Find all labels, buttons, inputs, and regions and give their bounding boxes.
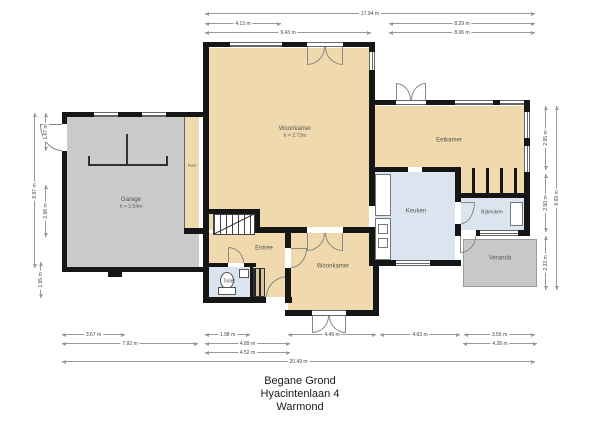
dim-label: 8.69 m [554,188,560,207]
plan-title-line1: Begane Grond [0,375,600,388]
closet-divider [500,168,503,193]
room-label-kast: Kast [188,162,196,169]
room-label-garage: Garage h = 2.54m [120,197,142,211]
veranda-deck [463,239,537,287]
garage-bench-tick [88,156,90,166]
wall-pillar [108,272,122,277]
dim-label: 17.94 m [359,11,381,17]
dim-top-left-inner: 4.13 m [205,23,281,24]
dim-label: 4.63 m [410,332,429,338]
dim-right-bottom: 2.33 m [545,236,546,290]
dim-label: 3.55 m [490,332,509,338]
kitchen-appliance [378,238,388,248]
window [455,100,493,105]
wall [524,172,530,236]
floor-garage [67,117,199,267]
dim-bottom-3: 4.52 m [205,352,290,353]
dim-label: 7.92 m [120,341,139,347]
wall [285,233,291,248]
room-label-eetkamer: Eetkamer [436,138,462,145]
kitchen-appliance [378,224,388,234]
room-name: Toilet [223,279,235,285]
room-name: Woonkamer [279,126,311,132]
wall [118,112,142,117]
wall [461,193,524,198]
dim-label: 4.13 m [233,21,252,27]
dim-top-right-inner: 8.29 m [389,23,535,24]
window [524,146,530,172]
garage-bench-stem [126,134,128,166]
dim-top-total: 17.94 m [205,13,535,14]
room-name: Woonkamer [317,264,349,270]
dim-bottom-1e: 3.55 m [464,334,535,335]
window [94,112,118,117]
wall [518,230,530,236]
room-height: h = 2.54m [120,204,142,211]
dim-left-outer: 8.97 m [34,113,35,268]
room-label-woonkamer: Woonkamer h = 2.73m [279,126,311,140]
wall [209,263,228,267]
wall [255,227,307,233]
wall [62,151,67,272]
wall [426,100,455,105]
door-opening [228,263,244,267]
door-arc-garden-right [329,316,346,333]
room-label-entree: Entree [255,246,273,253]
door-arc-garden-left [312,316,329,333]
toilet-tank [218,287,236,295]
dim-left-mid: 2.98 m [45,185,46,237]
garage-bench-line [88,164,168,166]
meter-cupboard [253,268,265,297]
dim-label: 9.43 m [278,30,297,36]
room-height: h = 2.73m [279,133,311,140]
window [396,260,430,266]
dim-label: 2.50 m [543,193,549,212]
wall [62,267,203,272]
dim-bottom-1a: 3.67 m [62,334,125,335]
toilet-sink [239,269,249,278]
window [500,100,524,105]
dim-bottom-1b: 1.98 m [205,334,250,335]
window [369,52,375,70]
dim-right-outer: 8.69 m [556,106,557,290]
room-label-bijkeuken: Bijkeuken [481,210,503,217]
wall [369,42,375,52]
wall [375,167,408,172]
dim-label: 8.97 m [32,181,38,200]
dim-label: 2.95 m [543,128,549,147]
kitchen-counter [375,174,391,216]
room-name: Veranda [489,256,511,262]
room-name: Kast [188,163,196,168]
wall [282,42,307,47]
dim-bottom-1d: 4.63 m [380,334,460,335]
closet-divider [472,168,475,193]
wall [455,224,461,236]
door-opening [396,100,426,105]
plan-title-line2: Hyacintenlaan 4 [0,388,600,401]
dim-top-right-outer: 8.06 m [389,32,535,33]
wall [430,260,461,266]
door-arc-terrace-right [411,83,426,100]
wall [493,100,500,105]
dim-bottom-2a: 7.92 m [62,343,198,344]
floor-mask [209,303,288,310]
wall [255,209,260,233]
room-name: Eetkamer [436,138,462,144]
wall-kast-divider [184,117,185,228]
room-name: Garage [121,197,141,203]
dim-left-top: 1.67 m [45,113,46,151]
dim-label: 1.98 m [218,332,237,338]
dim-label: 8.06 m [452,30,471,36]
room-label-toilet: Toilet [223,279,235,286]
closet-divider [486,168,489,193]
dim-label: 4.89 m [238,341,257,347]
door-opening [408,167,422,172]
wall [524,100,530,112]
window [142,112,166,117]
wall [346,310,379,316]
dim-bottom-1c: 4.49 m [288,334,376,335]
bijkeuken-appliance [510,202,523,226]
window [524,112,530,138]
wall [369,100,396,105]
dim-left-bottom: 1.95 m [40,262,41,298]
dim-bottom-total: 20.49 m [62,361,535,362]
dim-right-top: 2.95 m [545,106,546,170]
wall [285,310,312,316]
dim-label: 2.98 m [43,201,49,220]
floor-kast [185,115,199,229]
room-name: Entree [255,246,273,252]
closet-divider [514,168,517,193]
room-label-veranda: Veranda [489,256,511,263]
dim-label: 4.52 m [238,350,257,356]
wall [203,297,266,303]
dim-label: 20.49 m [287,359,309,365]
wall [62,112,67,124]
dim-bottom-2c: 4.28 m [463,343,537,344]
dim-label: 4.28 m [490,341,509,347]
room-label-keuken: Keuken [406,209,426,216]
dim-label: 3.67 m [84,332,103,338]
wall [203,42,230,47]
dim-label: 2.33 m [543,253,549,272]
room-name: Bijkeuken [481,210,503,216]
wall [285,268,291,303]
floor-plan: Garage h = 2.54m Kast Woonkamer h = 2.73… [0,0,600,424]
dim-top-left-outer: 9.43 m [205,32,371,33]
dim-right-mid: 2.50 m [545,174,546,232]
dim-label: 1.95 m [38,270,44,289]
plan-title-line3: Warmond [0,401,600,414]
dim-bottom-2b: 4.89 m [205,343,290,344]
garage-bench-tick [166,156,168,166]
dim-label: 1.67 m [43,122,49,141]
wall [422,167,455,172]
dim-label: 8.29 m [452,21,471,27]
dim-label: 4.49 m [322,332,341,338]
door-arc-terrace-left [396,83,411,100]
wall [343,227,375,233]
wall [524,138,530,146]
window [230,42,282,47]
room-label-woonkamer2: Woonkamer [317,264,349,271]
wall [184,228,204,234]
room-name: Keuken [406,209,426,215]
window [480,230,518,236]
